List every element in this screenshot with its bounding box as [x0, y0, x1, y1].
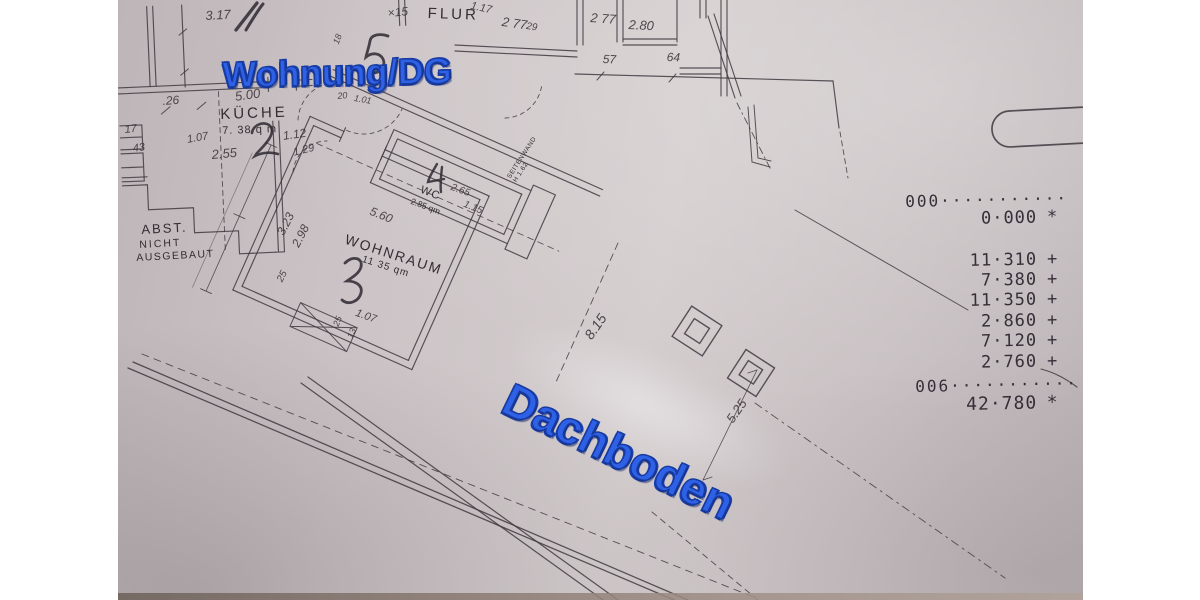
- paper-background: FLUR KÜCHE 7. 38 q m WOHNRAUM 11 35 qm W…: [118, 0, 1083, 600]
- room-area-kueche: 7. 38 q m: [222, 123, 277, 137]
- dimension: 57: [603, 52, 617, 66]
- dimension: 43: [132, 141, 146, 155]
- paper-bottom-edge: [118, 593, 1083, 600]
- chimney-symbol: [672, 306, 722, 356]
- tape-line: 0·000*: [917, 207, 1067, 230]
- tape-line: 11·350+: [917, 289, 1067, 312]
- tape-line: 7·120+: [917, 330, 1067, 353]
- dimension: 2.55: [211, 145, 238, 162]
- room-label-kueche: KÜCHE: [220, 104, 288, 123]
- oval-outline: [991, 102, 1083, 148]
- photo-of-floor-plan: FLUR KÜCHE 7. 38 q m WOHNRAUM 11 35 qm W…: [0, 0, 1200, 600]
- dimension: 29: [525, 21, 538, 33]
- dimension: 3.17: [205, 7, 231, 23]
- plan-artwork: FLUR KÜCHE 7. 38 q m WOHNRAUM 11 35 qm W…: [118, 0, 1083, 600]
- dimension: 17: [124, 123, 137, 136]
- dimension: ×15: [387, 4, 409, 20]
- tape-total: 42·780*: [917, 392, 1067, 416]
- room-label-abst: ABST.: [141, 220, 188, 237]
- dimension: .26: [162, 93, 180, 108]
- dimension: 2 77: [590, 10, 616, 27]
- tape-line: 2·760+: [917, 351, 1067, 374]
- room-label-abst-nicht: NICHT: [139, 237, 182, 251]
- dimension: 64: [667, 50, 681, 64]
- chimney-symbol: [727, 349, 774, 396]
- overlay-label-wohnung-dg: Wohnung/DG: [222, 50, 452, 96]
- dimension: 2.80: [628, 17, 654, 33]
